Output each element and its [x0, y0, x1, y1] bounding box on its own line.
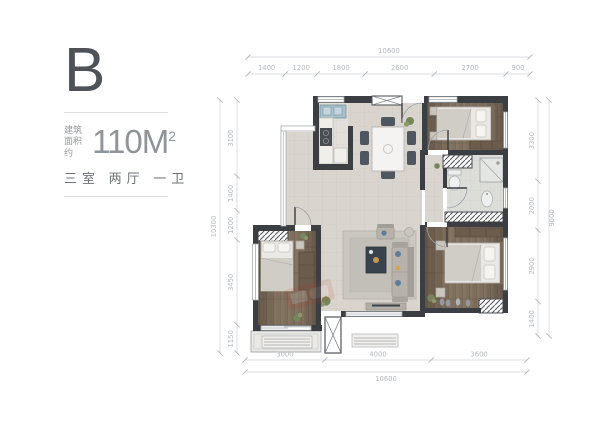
flue-hatch-bath [443, 155, 472, 168]
master-wardrobe [455, 228, 501, 237]
entry-threshold [372, 96, 402, 105]
svg-text:1400: 1400 [227, 185, 235, 202]
svg-text:1800: 1800 [332, 64, 349, 72]
svg-text:3300: 3300 [528, 132, 536, 149]
svg-text:10600: 10600 [375, 375, 397, 383]
flue-hatch-master [445, 212, 503, 222]
svg-text:3450: 3450 [227, 274, 235, 291]
svg-text:1400: 1400 [528, 310, 536, 327]
svg-text:2900: 2900 [528, 257, 536, 274]
svg-text:3600: 3600 [470, 351, 487, 359]
svg-text:3000: 3000 [276, 351, 293, 359]
corridor-floor [425, 155, 443, 222]
balcony-sliding-door [261, 326, 311, 330]
side-table [405, 228, 414, 237]
bedroom2-top-window [429, 97, 457, 102]
svg-text:2700: 2700 [461, 64, 478, 72]
svg-text:10600: 10600 [378, 47, 400, 55]
floor-plan-svg: 1400120018002600270090010600 30004000360… [0, 0, 600, 445]
living-room-furniture [343, 224, 416, 310]
kitchen-window [318, 97, 344, 102]
dimension-chain-right: 33002000290014009600 [528, 97, 556, 338]
balcony-drying-rack [262, 336, 312, 348]
svg-text:1200: 1200 [227, 217, 235, 234]
bedroom3-left-window [253, 244, 259, 300]
svg-text:2600: 2600 [391, 64, 408, 72]
bathroom-window [504, 188, 508, 208]
svg-text:9600: 9600 [548, 209, 556, 226]
svg-text:1150: 1150 [227, 330, 235, 347]
flue-shaft [325, 317, 341, 353]
svg-text:900: 900 [512, 64, 525, 72]
ac-platform-master [479, 299, 503, 313]
svg-text:1200: 1200 [293, 64, 310, 72]
living-south-window [346, 312, 402, 316]
svg-text:3100: 3100 [227, 129, 235, 146]
dimension-chain-left: 3100140012003450115010300 [210, 97, 240, 355]
svg-text:10300: 10300 [210, 216, 218, 238]
south-planter [352, 334, 398, 347]
svg-text:4000: 4000 [369, 351, 386, 359]
svg-text:1400: 1400 [258, 64, 275, 72]
toilet [448, 170, 461, 175]
bedroom2-right-window [504, 112, 508, 148]
floorplan-image: B 建筑 面积约 110M2 三室 两厅 一卫 [0, 0, 600, 445]
dimension-chain-bottom: 30004000360010600 [242, 351, 529, 384]
dimension-chain-top: 1400120018002600270090010600 [245, 47, 532, 77]
svg-text:2000: 2000 [528, 197, 536, 214]
master-right-window [504, 238, 508, 290]
